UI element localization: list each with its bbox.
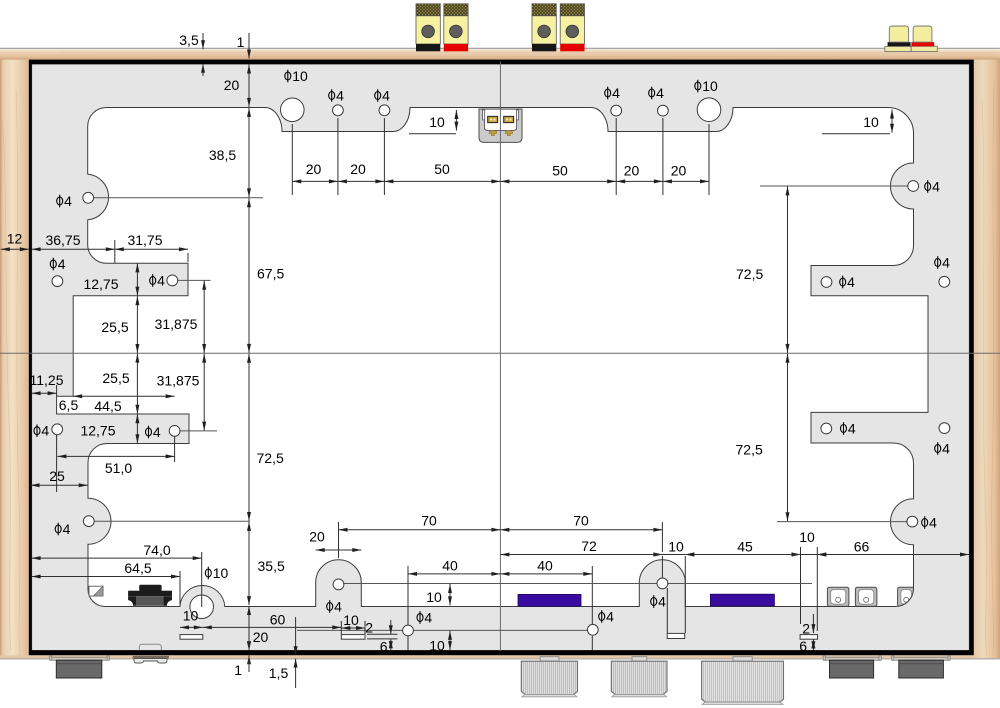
svg-text:35,5: 35,5	[258, 558, 285, 574]
svg-text:36,75: 36,75	[45, 232, 80, 248]
svg-text:10: 10	[429, 638, 445, 654]
svg-text:4: 4	[336, 88, 344, 104]
svg-text:2: 2	[365, 620, 373, 636]
svg-text:4: 4	[932, 179, 940, 195]
svg-text:4: 4	[942, 255, 950, 271]
svg-text:10: 10	[213, 565, 229, 581]
svg-text:70: 70	[421, 513, 437, 529]
svg-text:20: 20	[309, 529, 325, 545]
svg-text:20: 20	[253, 629, 269, 645]
svg-text:1: 1	[234, 662, 242, 678]
svg-text:4: 4	[847, 274, 855, 290]
svg-text:12,75: 12,75	[83, 276, 118, 292]
svg-text:4: 4	[606, 609, 614, 625]
svg-text:40: 40	[537, 558, 553, 574]
svg-text:51,0: 51,0	[105, 460, 132, 476]
svg-text:12: 12	[7, 231, 23, 247]
svg-text:44,5: 44,5	[94, 398, 121, 414]
svg-text:25,5: 25,5	[101, 319, 128, 335]
svg-text:10: 10	[429, 114, 445, 130]
svg-text:6,5: 6,5	[59, 397, 79, 413]
svg-text:4: 4	[382, 88, 390, 104]
svg-text:4: 4	[153, 424, 161, 440]
svg-text:31,875: 31,875	[157, 373, 200, 389]
svg-text:50: 50	[434, 161, 450, 177]
svg-text:72,5: 72,5	[257, 450, 284, 466]
svg-text:4: 4	[612, 85, 620, 101]
svg-text:10: 10	[799, 529, 815, 545]
svg-text:3,5: 3,5	[179, 32, 199, 48]
svg-text:4: 4	[157, 273, 165, 289]
svg-text:4: 4	[942, 441, 950, 457]
svg-text:60: 60	[270, 612, 286, 628]
svg-text:4: 4	[64, 193, 72, 209]
svg-text:12,75: 12,75	[80, 423, 115, 439]
svg-text:4: 4	[424, 610, 432, 626]
svg-text:4: 4	[41, 423, 49, 439]
svg-text:66: 66	[854, 539, 870, 555]
svg-text:74,0: 74,0	[143, 542, 170, 558]
svg-text:25: 25	[49, 468, 65, 484]
svg-text:10: 10	[292, 68, 308, 84]
svg-text:10: 10	[183, 608, 199, 624]
svg-text:50: 50	[552, 163, 568, 179]
svg-text:20: 20	[306, 161, 322, 177]
svg-text:1: 1	[237, 34, 245, 50]
svg-text:10: 10	[343, 612, 359, 628]
svg-text:31,875: 31,875	[155, 316, 198, 332]
svg-text:1,5: 1,5	[269, 665, 289, 681]
svg-text:20: 20	[671, 163, 687, 179]
svg-text:25,5: 25,5	[102, 370, 129, 386]
svg-text:4: 4	[656, 85, 664, 101]
svg-text:4: 4	[63, 521, 71, 537]
svg-text:4: 4	[848, 421, 856, 437]
svg-text:4: 4	[334, 599, 342, 615]
svg-text:38,5: 38,5	[209, 147, 236, 163]
svg-text:31,75: 31,75	[127, 232, 162, 248]
svg-text:10: 10	[668, 539, 684, 555]
svg-text:10: 10	[426, 589, 442, 605]
svg-text:6: 6	[799, 638, 807, 654]
svg-text:10: 10	[863, 114, 879, 130]
svg-text:72,5: 72,5	[736, 266, 763, 282]
svg-text:4: 4	[929, 515, 937, 531]
svg-text:70: 70	[573, 513, 589, 529]
svg-text:20: 20	[224, 77, 240, 93]
svg-text:2: 2	[802, 620, 810, 636]
svg-text:45: 45	[737, 539, 753, 555]
svg-text:72: 72	[581, 538, 597, 554]
svg-text:4: 4	[658, 594, 666, 610]
svg-text:72,5: 72,5	[736, 442, 763, 458]
svg-text:20: 20	[624, 163, 640, 179]
svg-text:11,25: 11,25	[30, 372, 64, 388]
svg-text:40: 40	[442, 558, 458, 574]
svg-text:6: 6	[380, 639, 388, 655]
svg-text:10: 10	[702, 78, 718, 94]
svg-text:67,5: 67,5	[257, 266, 284, 282]
svg-text:20: 20	[350, 161, 366, 177]
svg-text:64,5: 64,5	[124, 560, 151, 576]
svg-text:4: 4	[58, 256, 66, 272]
